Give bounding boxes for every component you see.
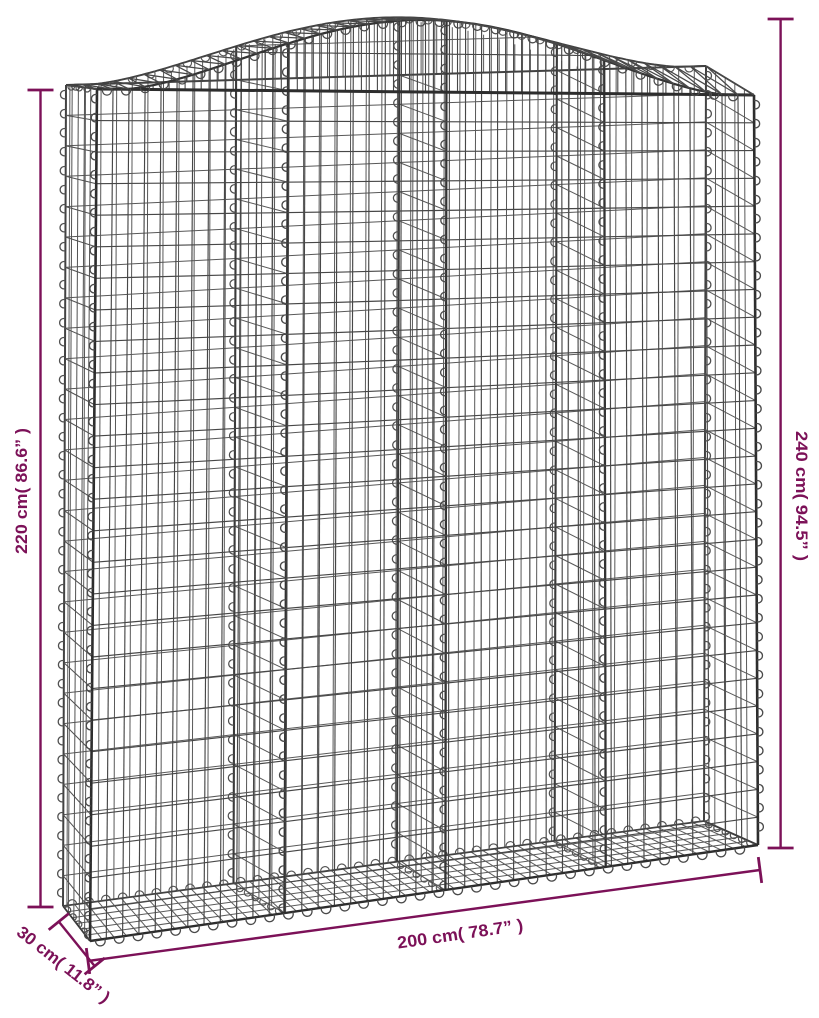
svg-text:220 cm( 86.6” ): 220 cm( 86.6” ): [12, 428, 31, 554]
svg-text:240 cm( 94.5” ): 240 cm( 94.5” ): [792, 431, 811, 561]
